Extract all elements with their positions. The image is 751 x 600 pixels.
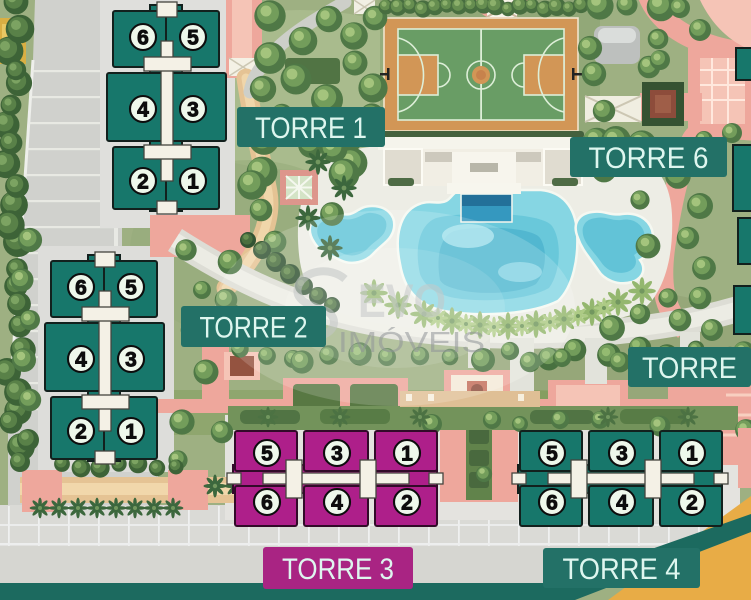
svg-text:5: 5 [546,443,558,466]
svg-text:TORRE 3: TORRE 3 [282,553,394,586]
svg-text:TORRE: TORRE [642,352,737,385]
svg-text:3: 3 [187,99,199,122]
svg-text:2: 2 [137,171,149,194]
svg-text:6: 6 [546,492,558,515]
svg-text:1: 1 [187,171,199,194]
svg-text:5: 5 [187,27,199,50]
svg-text:5: 5 [261,443,273,466]
svg-text:IMÓVEIS: IMÓVEIS [338,326,485,359]
svg-text:1: 1 [125,421,137,444]
svg-text:4: 4 [137,99,149,122]
svg-text:TORRE 2: TORRE 2 [200,312,308,345]
svg-text:4: 4 [331,492,343,515]
svg-text:1: 1 [686,443,698,466]
svg-text:3: 3 [331,443,343,466]
svg-text:4: 4 [75,349,87,372]
svg-text:2: 2 [686,492,698,515]
svg-text:3: 3 [125,349,137,372]
svg-text:4: 4 [616,492,628,515]
svg-text:TORRE 1: TORRE 1 [255,112,367,145]
svg-text:2: 2 [401,492,413,515]
svg-text:TORRE 6: TORRE 6 [589,142,709,175]
svg-text:2: 2 [75,421,87,444]
svg-text:6: 6 [75,277,87,300]
svg-text:3: 3 [616,443,628,466]
svg-text:TORRE 4: TORRE 4 [563,553,681,586]
svg-text:EVO: EVO [358,274,446,327]
svg-text:1: 1 [401,443,413,466]
svg-text:6: 6 [261,492,273,515]
svg-text:6: 6 [137,27,149,50]
svg-text:5: 5 [125,277,137,300]
